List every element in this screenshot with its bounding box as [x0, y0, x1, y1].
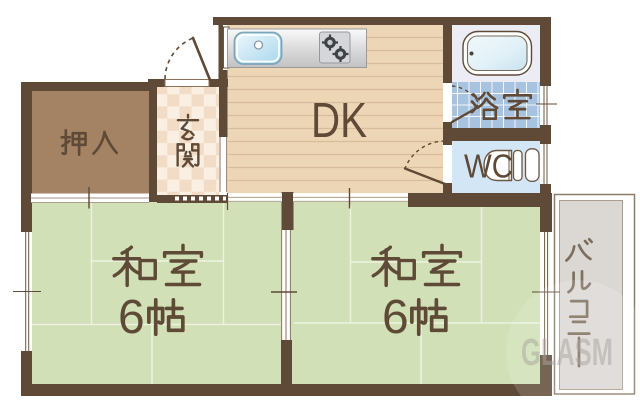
svg-text:DK: DK	[311, 94, 367, 148]
svg-text:6: 6	[382, 291, 409, 344]
svg-text:WC: WC	[464, 148, 513, 185]
svg-text:6: 6	[118, 291, 145, 344]
svg-text:GLASM: GLASM	[521, 332, 613, 374]
